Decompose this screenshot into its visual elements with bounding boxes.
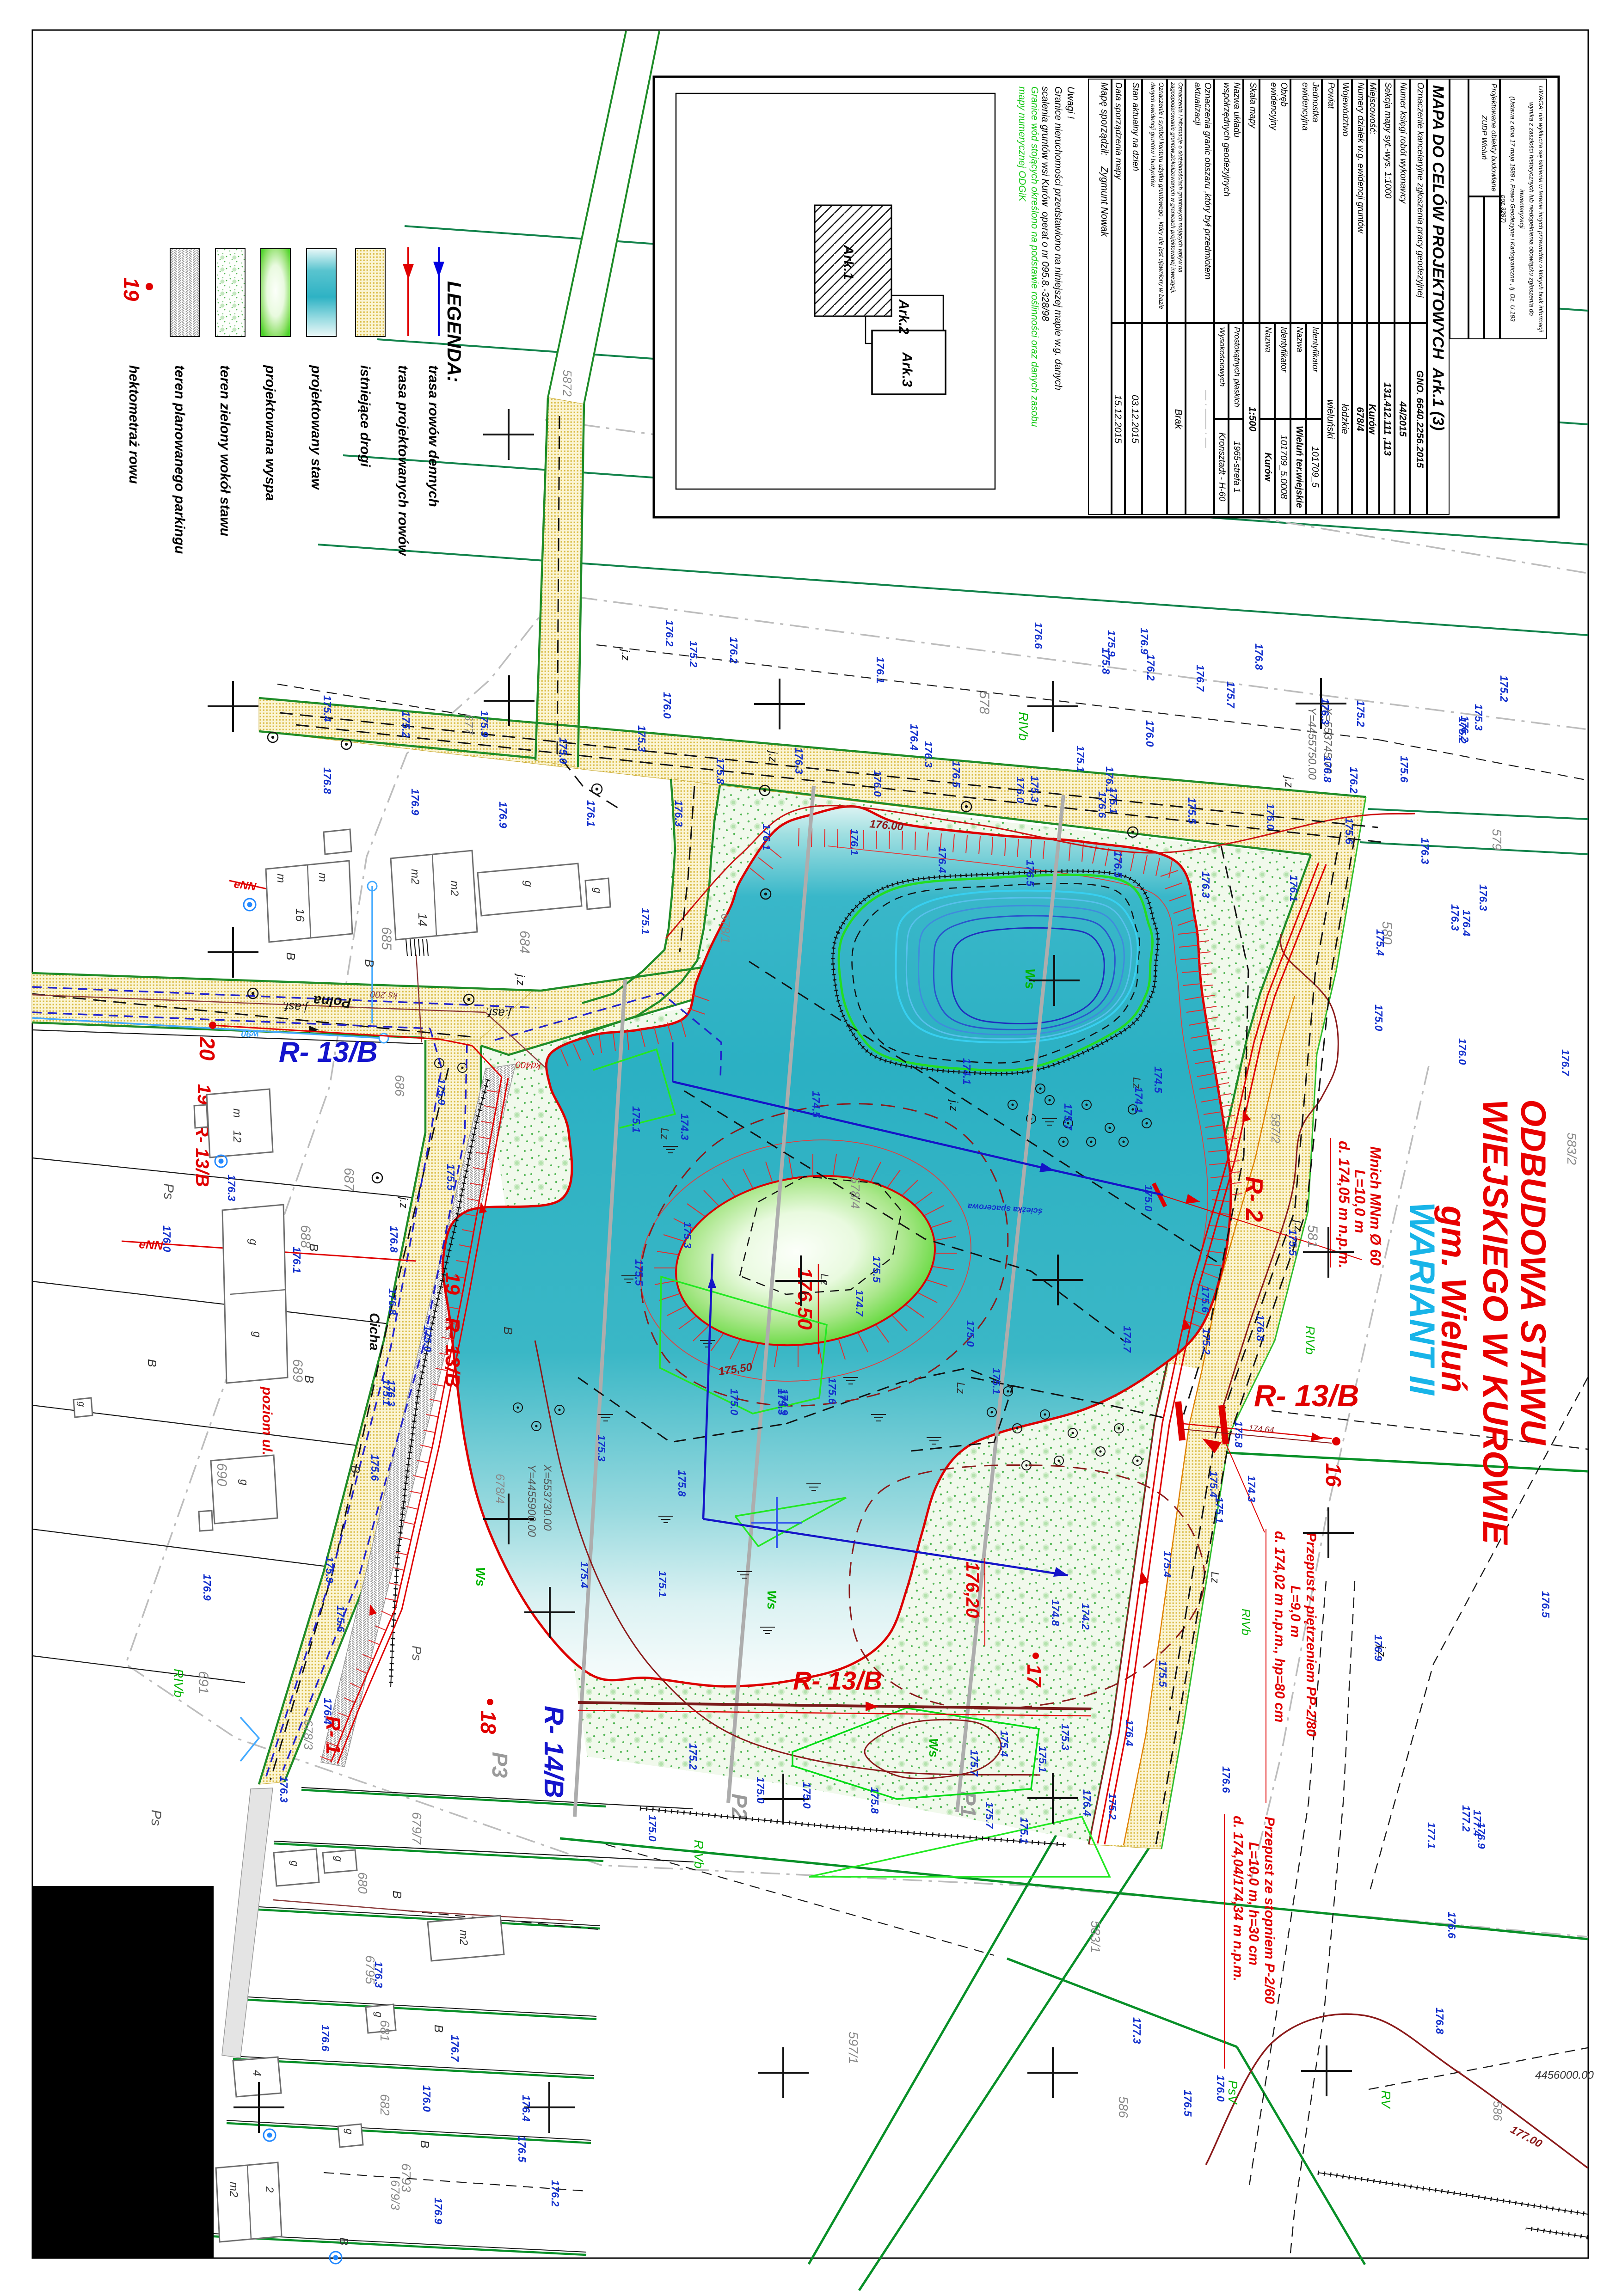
svg-text:176.9: 176.9 xyxy=(201,1574,213,1601)
svg-text:174.2: 174.2 xyxy=(1080,1603,1092,1630)
svg-text:175.2: 175.2 xyxy=(1498,675,1510,702)
svg-text:5872: 5872 xyxy=(560,370,574,397)
svg-text:175.5: 175.5 xyxy=(1287,1229,1299,1256)
svg-text:14: 14 xyxy=(416,913,430,926)
svg-text:175.3: 175.3 xyxy=(596,1435,608,1462)
svg-text:175.1: 175.1 xyxy=(1018,1817,1030,1844)
svg-text:175.7: 175.7 xyxy=(968,1750,980,1777)
svg-text:678/1: 678/1 xyxy=(719,913,732,943)
svg-text:679/3: 679/3 xyxy=(388,2180,402,2210)
svg-text:174.5: 174.5 xyxy=(810,1091,822,1118)
svg-text:P3: P3 xyxy=(488,1752,512,1778)
svg-text:176.3: 176.3 xyxy=(1419,838,1431,864)
svg-text:679/7: 679/7 xyxy=(410,1812,424,1845)
svg-text:176.2: 176.2 xyxy=(664,620,676,647)
svg-text:Cicha: Cicha xyxy=(367,1313,382,1351)
svg-text:175.8: 175.8 xyxy=(714,758,726,784)
svg-text:175.1: 175.1 xyxy=(1037,1746,1049,1773)
svg-text:175.5: 175.5 xyxy=(445,1164,457,1191)
svg-text:16: 16 xyxy=(1321,1463,1346,1487)
svg-text:Ark.2: Ark.2 xyxy=(896,299,911,334)
svg-text:176.6: 176.6 xyxy=(1446,1912,1458,1939)
svg-text:j.z: j.z xyxy=(619,648,632,661)
svg-text:Ws: Ws xyxy=(473,1567,488,1586)
svg-text:176.2: 176.2 xyxy=(728,637,740,664)
svg-text:176.3: 176.3 xyxy=(278,1776,290,1803)
svg-text:teren zielony wokół stawu: teren zielony wokół stawu xyxy=(217,365,233,536)
svg-text:678/3: 678/3 xyxy=(301,1720,315,1750)
svg-text:682: 682 xyxy=(378,2094,392,2116)
svg-text:176.8: 176.8 xyxy=(1254,1315,1266,1341)
svg-text:175.8: 175.8 xyxy=(1233,1421,1245,1448)
svg-text:579: 579 xyxy=(1490,829,1504,851)
svg-text:175.6: 175.6 xyxy=(1199,1286,1211,1313)
svg-text:g: g xyxy=(289,1861,301,1867)
svg-text:176.2: 176.2 xyxy=(549,2180,561,2207)
svg-text:Ark.1: Ark.1 xyxy=(841,245,856,280)
svg-text:175.1: 175.1 xyxy=(639,908,651,935)
svg-text:175.2: 175.2 xyxy=(687,1743,699,1770)
svg-text:176.3: 176.3 xyxy=(1477,884,1489,911)
svg-text:177.4: 177.4 xyxy=(1471,1810,1483,1837)
svg-text:Mnich MNm Ø 60: Mnich MNm Ø 60 xyxy=(1367,1146,1384,1266)
svg-text:177.1: 177.1 xyxy=(1425,1822,1438,1849)
svg-text:176.2: 176.2 xyxy=(1145,654,1157,681)
svg-text:680: 680 xyxy=(356,1872,370,1894)
svg-text:176.6: 176.6 xyxy=(1032,622,1044,649)
svg-text:16: 16 xyxy=(293,908,307,922)
svg-text:175.4: 175.4 xyxy=(321,695,333,722)
svg-text:175.2: 175.2 xyxy=(1106,1793,1118,1820)
svg-text:175.3: 175.3 xyxy=(1059,1724,1071,1751)
svg-text:m2: m2 xyxy=(448,881,461,896)
svg-text:eNN: eNN xyxy=(139,1237,164,1253)
svg-text:175.1: 175.1 xyxy=(1075,746,1087,772)
svg-text:g: g xyxy=(373,2012,385,2018)
svg-text:RIVb: RIVb xyxy=(1303,1326,1317,1354)
svg-text:RIVb: RIVb xyxy=(1016,712,1031,741)
svg-text:hektometraż rowu: hektometraż rowu xyxy=(126,365,141,484)
svg-text:176.3: 176.3 xyxy=(373,1961,385,1988)
svg-text:175.0: 175.0 xyxy=(422,1325,434,1352)
svg-text:175.5: 175.5 xyxy=(1186,797,1198,825)
svg-text:B: B xyxy=(432,2025,446,2033)
svg-text:B: B xyxy=(307,1243,321,1251)
svg-text:Ps: Ps xyxy=(410,1646,424,1661)
svg-text:B: B xyxy=(337,2237,351,2245)
svg-text:Lz: Lz xyxy=(818,1274,830,1285)
svg-text:175.0: 175.0 xyxy=(646,1815,658,1842)
svg-text:R- 2: R- 2 xyxy=(1241,1176,1267,1222)
svg-text:175.1: 175.1 xyxy=(657,1571,669,1598)
svg-text:12: 12 xyxy=(231,1130,243,1143)
svg-text:175.0: 175.0 xyxy=(965,1320,977,1347)
svg-text:583/2: 583/2 xyxy=(1565,1133,1579,1165)
svg-text:WARIANT II: WARIANT II xyxy=(1402,1202,1442,1396)
svg-text:174.9: 174.9 xyxy=(778,1389,790,1415)
svg-text:175.6: 175.6 xyxy=(826,1378,838,1404)
svg-text:WIEJSKIEGO W KUROWIE: WIEJSKIEGO W KUROWIE xyxy=(1475,1099,1515,1545)
svg-text:RIVb: RIVb xyxy=(692,1840,706,1868)
svg-text:j.asf.: j.asf. xyxy=(485,1005,513,1021)
svg-text:projektowana wyspa: projektowana wyspa xyxy=(263,365,278,501)
svg-text:175.3: 175.3 xyxy=(636,725,648,752)
svg-text:578: 578 xyxy=(977,691,992,714)
svg-text:175.9: 175.9 xyxy=(479,710,491,737)
svg-text:Ws: Ws xyxy=(765,1590,779,1610)
svg-text:L=10,0 m, h=30 cm: L=10,0 m, h=30 cm xyxy=(1246,1842,1261,1965)
svg-text:175.6: 175.6 xyxy=(1343,818,1355,845)
svg-text:175.1: 175.1 xyxy=(1213,1497,1225,1524)
svg-text:176.1: 176.1 xyxy=(1104,766,1116,793)
svg-text:175.2: 175.2 xyxy=(1456,717,1468,744)
svg-text:176.2: 176.2 xyxy=(1348,767,1360,794)
svg-text:176.0: 176.0 xyxy=(1215,2075,1227,2102)
svg-text:ODBUDOWA STAWU: ODBUDOWA STAWU xyxy=(1513,1099,1553,1445)
svg-text:175.0: 175.0 xyxy=(1373,1004,1385,1031)
svg-text:174.1: 174.1 xyxy=(1133,1087,1145,1114)
svg-text:176.5: 176.5 xyxy=(1112,851,1124,878)
svg-text:176.4: 176.4 xyxy=(520,2095,532,2122)
svg-text:587/2: 587/2 xyxy=(1269,1113,1283,1144)
svg-text:176.1: 176.1 xyxy=(874,657,886,684)
svg-text:176.3: 176.3 xyxy=(1319,698,1331,725)
svg-text:175.1: 175.1 xyxy=(630,1106,642,1133)
svg-text:174.1: 174.1 xyxy=(961,1058,973,1085)
svg-text:175.3: 175.3 xyxy=(1029,776,1041,802)
svg-text:Przepust z piętrzeniem PP-2/80: Przepust z piętrzeniem PP-2/80 xyxy=(1303,1532,1319,1737)
svg-text:X=553730.00: X=553730.00 xyxy=(541,1464,553,1531)
svg-text:176.7: 176.7 xyxy=(1194,665,1206,692)
svg-text:176.3: 176.3 xyxy=(922,741,934,768)
svg-text:175.4: 175.4 xyxy=(998,1730,1010,1757)
svg-text:B: B xyxy=(501,1327,515,1335)
svg-text:684: 684 xyxy=(517,931,532,954)
svg-text:175.7: 175.7 xyxy=(983,1802,995,1829)
svg-text:176.5: 176.5 xyxy=(1182,2090,1194,2117)
svg-text:d. 174,04/174,34 m n.p.m.: d. 174,04/174,34 m n.p.m. xyxy=(1230,1816,1246,1982)
svg-text:R- 13/B: R- 13/B xyxy=(441,1317,464,1388)
svg-text:m: m xyxy=(316,873,329,882)
svg-text:d. 174,05 m n.p.m.: d. 174,05 m n.p.m. xyxy=(1336,1141,1352,1268)
svg-text:176.4: 176.4 xyxy=(322,1698,334,1725)
svg-text:175.4: 175.4 xyxy=(1374,929,1386,956)
svg-text:B: B xyxy=(418,2140,432,2148)
svg-text:g: g xyxy=(333,1856,344,1862)
svg-text:176,20: 176,20 xyxy=(962,1561,983,1618)
svg-text:691: 691 xyxy=(196,1671,211,1694)
svg-text:176.9: 176.9 xyxy=(1372,1635,1384,1661)
svg-text:175.8: 175.8 xyxy=(1100,648,1112,674)
svg-text:j.z: j.z xyxy=(514,973,527,986)
svg-text:175.0: 175.0 xyxy=(801,1782,813,1809)
svg-text:176.8: 176.8 xyxy=(321,767,333,794)
svg-text:678/4: 678/4 xyxy=(493,1474,507,1504)
svg-text:Ws: Ws xyxy=(1022,968,1038,989)
svg-text:174.5: 174.5 xyxy=(1152,1066,1164,1094)
svg-text:175.6: 175.6 xyxy=(335,1605,347,1632)
svg-text:176.4: 176.4 xyxy=(908,724,920,751)
svg-text:176.3: 176.3 xyxy=(1449,904,1461,931)
svg-text:19: 19 xyxy=(119,277,143,301)
svg-text:R- 13/B: R- 13/B xyxy=(279,1036,378,1068)
svg-text:175.0: 175.0 xyxy=(1143,1185,1155,1212)
svg-text:Y=4455750.00: Y=4455750.00 xyxy=(1306,707,1318,780)
svg-text:176.1: 176.1 xyxy=(1288,875,1300,902)
svg-text:176.5: 176.5 xyxy=(1540,1591,1552,1618)
svg-text:4: 4 xyxy=(251,2070,263,2076)
svg-text:176.3: 176.3 xyxy=(673,800,685,827)
svg-text:176.4: 176.4 xyxy=(1081,1789,1093,1816)
svg-text:175.7: 175.7 xyxy=(1225,681,1237,709)
svg-text:B: B xyxy=(362,959,376,967)
svg-text:j.z: j.z xyxy=(1283,775,1295,788)
svg-text:176.8: 176.8 xyxy=(1321,756,1333,783)
svg-text:Y=4455900.00: Y=4455900.00 xyxy=(525,1464,538,1537)
svg-text:175.2: 175.2 xyxy=(400,711,412,738)
svg-text:176.3: 176.3 xyxy=(226,1175,238,1201)
svg-text:176.9: 176.9 xyxy=(409,789,421,815)
svg-text:586: 586 xyxy=(1116,2096,1130,2118)
svg-text:4456000.00: 4456000.00 xyxy=(1535,2069,1594,2082)
svg-text:176.0: 176.0 xyxy=(161,1225,173,1252)
svg-text:175.5: 175.5 xyxy=(871,1256,883,1283)
svg-text:RIVb: RIVb xyxy=(1239,1609,1253,1635)
svg-text:Polna: Polna xyxy=(313,992,352,1010)
svg-text:175.1: 175.1 xyxy=(990,1368,1002,1395)
svg-text:175.9: 175.9 xyxy=(436,1078,448,1105)
svg-text:B: B xyxy=(349,1465,362,1473)
svg-text:175.2: 175.2 xyxy=(688,641,700,667)
svg-text:B: B xyxy=(145,1359,159,1367)
svg-text:RV: RV xyxy=(1379,2090,1393,2109)
svg-text:19: 19 xyxy=(441,1272,464,1295)
svg-text:R- 14/B: R- 14/B xyxy=(539,1706,569,1798)
svg-text:175.5: 175.5 xyxy=(633,1259,645,1286)
svg-text:B: B xyxy=(302,1375,316,1383)
svg-text:176.3: 176.3 xyxy=(793,747,805,774)
svg-text:w90: w90 xyxy=(241,1028,259,1040)
svg-text:175.3: 175.3 xyxy=(1473,704,1485,731)
svg-text:175.0: 175.0 xyxy=(557,737,569,764)
svg-text:g: g xyxy=(238,1479,250,1486)
svg-text:176.4: 176.4 xyxy=(936,846,948,873)
svg-text:174.3: 174.3 xyxy=(679,1114,691,1140)
svg-text:176.9: 176.9 xyxy=(432,2198,444,2224)
svg-text:Lz: Lz xyxy=(954,1382,967,1394)
svg-text:g: g xyxy=(522,881,535,887)
svg-text:Przepust ze stopniem P-2/60: Przepust ze stopniem P-2/60 xyxy=(1262,1817,1277,2004)
svg-text:176.0: 176.0 xyxy=(1144,720,1156,747)
svg-text:17: 17 xyxy=(1023,1664,1045,1688)
svg-text:175.2: 175.2 xyxy=(1200,1328,1212,1355)
svg-text:m2: m2 xyxy=(409,869,421,884)
svg-text:176.0: 176.0 xyxy=(1456,1038,1468,1065)
svg-text:176.0: 176.0 xyxy=(872,770,884,797)
svg-text:174.7: 174.7 xyxy=(1121,1326,1133,1353)
svg-text:trasa rowów dennych: trasa rowów dennych xyxy=(426,365,441,507)
svg-text:m: m xyxy=(275,874,287,883)
svg-text:m2: m2 xyxy=(227,2182,240,2197)
svg-text:trasa projektowanych rowów: trasa projektowanych rowów xyxy=(395,365,411,556)
svg-text:583/1: 583/1 xyxy=(1088,1921,1103,1953)
svg-text:176.6: 176.6 xyxy=(1220,1766,1232,1793)
svg-text:20: 20 xyxy=(195,1036,219,1061)
svg-text:174.3: 174.3 xyxy=(1246,1476,1258,1502)
svg-text:18: 18 xyxy=(476,1710,500,1734)
svg-text:176.1: 176.1 xyxy=(291,1247,303,1274)
svg-text:g: g xyxy=(251,1331,263,1338)
svg-text:175.8: 175.8 xyxy=(869,1787,881,1814)
svg-text:j.asf.: j.asf. xyxy=(282,999,309,1015)
svg-text:L=9,0 m: L=9,0 m xyxy=(1288,1586,1303,1638)
svg-text:175.4: 175.4 xyxy=(578,1561,590,1588)
svg-text:175.9: 175.9 xyxy=(324,1556,336,1583)
svg-text:176.8: 176.8 xyxy=(1253,643,1265,670)
svg-text:175.4: 175.4 xyxy=(1208,1471,1220,1498)
svg-text:R- 13/B: R- 13/B xyxy=(1254,1378,1359,1413)
svg-text:176.1: 176.1 xyxy=(585,800,597,827)
svg-text:j.z: j.z xyxy=(397,1196,410,1208)
svg-text:176.4: 176.4 xyxy=(1124,1720,1136,1746)
svg-text:teren planowanego parkingu: teren planowanego parkingu xyxy=(172,365,187,554)
svg-text:176.8: 176.8 xyxy=(388,1226,400,1253)
svg-text:g: g xyxy=(247,1239,259,1245)
svg-text:176.3: 176.3 xyxy=(385,1380,397,1407)
svg-text:175.8: 175.8 xyxy=(676,1470,688,1497)
svg-text:175.7: 175.7 xyxy=(1062,1103,1074,1131)
svg-text:176.7: 176.7 xyxy=(449,2035,461,2062)
svg-text:175.5: 175.5 xyxy=(1157,1660,1169,1688)
svg-text:R- 13/B: R- 13/B xyxy=(793,1666,882,1695)
svg-text:177.2: 177.2 xyxy=(1460,1805,1472,1832)
svg-text:176.9: 176.9 xyxy=(497,802,509,828)
svg-text:Ps: Ps xyxy=(161,1183,176,1200)
svg-text:2: 2 xyxy=(263,2186,276,2192)
svg-text:175.3: 175.3 xyxy=(682,1222,694,1249)
svg-text:Ps: Ps xyxy=(148,1810,164,1826)
svg-text:176.1: 176.1 xyxy=(848,829,860,856)
svg-text:176.5: 176.5 xyxy=(1024,860,1036,887)
svg-text:Lz: Lz xyxy=(658,1128,671,1139)
svg-text:PsV: PsV xyxy=(1226,2080,1240,2105)
svg-text:L=10,0 m: L=10,0 m xyxy=(1352,1169,1368,1233)
svg-text:685: 685 xyxy=(379,927,394,950)
svg-text:Ws: Ws xyxy=(927,1738,941,1757)
svg-text:678/4: 678/4 xyxy=(848,1176,862,1209)
svg-text:681: 681 xyxy=(378,2020,392,2042)
svg-text:597/1: 597/1 xyxy=(846,2032,860,2064)
svg-text:176.6: 176.6 xyxy=(1096,791,1108,818)
svg-text:m2: m2 xyxy=(457,1930,470,1945)
svg-text:B: B xyxy=(390,1891,404,1898)
svg-text:176.0: 176.0 xyxy=(421,2085,433,2112)
svg-text:686: 686 xyxy=(393,1075,407,1096)
svg-text:176.0: 176.0 xyxy=(661,692,673,719)
svg-text:B: B xyxy=(284,952,298,960)
svg-text:581: 581 xyxy=(1305,1225,1320,1248)
svg-text:g: g xyxy=(592,888,603,894)
svg-text:176.6: 176.6 xyxy=(319,2025,332,2051)
svg-text:176.8: 176.8 xyxy=(387,1288,399,1315)
svg-text:176.5: 176.5 xyxy=(950,761,962,788)
svg-text:175.6: 175.6 xyxy=(1398,756,1410,783)
svg-text:j.z: j.z xyxy=(767,750,779,762)
svg-text:Lz: Lz xyxy=(1209,1572,1221,1583)
svg-text:176.1: 176.1 xyxy=(761,824,773,851)
svg-text:175.6: 175.6 xyxy=(369,1454,381,1481)
svg-text:istniejące drogi: istniejące drogi xyxy=(357,365,373,467)
svg-text:Ark.3: Ark.3 xyxy=(899,352,915,387)
svg-text:d. 174,02 m n.p.m., hp=80 cm: d. 174,02 m n.p.m., hp=80 cm xyxy=(1272,1531,1287,1722)
svg-text:175.2: 175.2 xyxy=(1355,700,1367,727)
svg-text:175.4: 175.4 xyxy=(1161,1551,1173,1578)
svg-text:176.0: 176.0 xyxy=(1014,777,1026,803)
svg-text:g: g xyxy=(344,2129,355,2135)
svg-text:m: m xyxy=(231,1108,243,1118)
svg-text:687: 687 xyxy=(341,1168,356,1191)
svg-text:176.5: 176.5 xyxy=(516,2136,528,2163)
svg-text:174.7: 174.7 xyxy=(854,1290,866,1317)
svg-text:586: 586 xyxy=(1491,2101,1505,2121)
svg-text:176.8: 176.8 xyxy=(1434,2008,1446,2034)
svg-text:176.7: 176.7 xyxy=(1560,1049,1572,1077)
svg-text:LEGENDA:: LEGENDA: xyxy=(443,281,465,382)
svg-text:176.3: 176.3 xyxy=(1200,871,1212,898)
svg-text:ks 200: ks 200 xyxy=(370,989,398,1001)
svg-text:176.4: 176.4 xyxy=(1461,910,1473,937)
svg-text:177.3: 177.3 xyxy=(1131,2017,1143,2044)
svg-text:P2: P2 xyxy=(727,1794,751,1820)
svg-text:projektowany staw: projektowany staw xyxy=(308,365,324,490)
svg-text:175.0: 175.0 xyxy=(755,1777,767,1804)
svg-text:176.0: 176.0 xyxy=(1265,803,1277,830)
svg-text:176.9: 176.9 xyxy=(1138,628,1150,655)
svg-text:690: 690 xyxy=(214,1463,229,1486)
svg-text:174.8: 174.8 xyxy=(1050,1599,1062,1626)
svg-text:RIVb: RIVb xyxy=(172,1669,186,1697)
svg-text:677: 677 xyxy=(462,714,476,735)
svg-text:kd400: kd400 xyxy=(515,1059,541,1071)
svg-text:g: g xyxy=(76,1402,86,1407)
svg-text:175.0: 175.0 xyxy=(728,1389,740,1415)
svg-text:j.z: j.z xyxy=(947,1099,960,1111)
